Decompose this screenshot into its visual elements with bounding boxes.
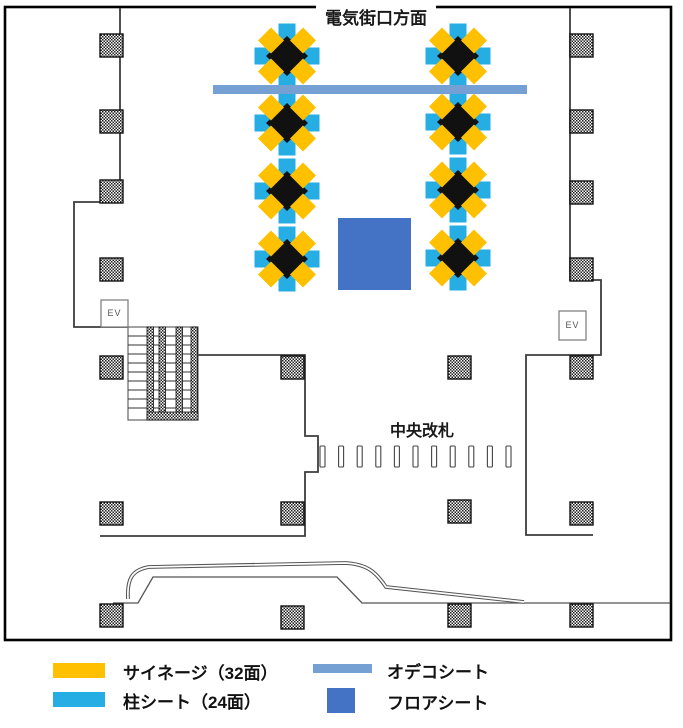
floor-sheet-area [338,218,411,290]
structural-pillar [281,356,304,379]
station-floor-plan-page: 電気街口方面 中央改札 EV EV サイネージ（32面） 柱シート（24面） オ… [0,0,683,728]
structural-pillar [100,604,123,627]
structural-pillar [570,356,593,379]
ramp-outline [113,563,670,603]
ticket-gate [469,446,474,467]
legend-swatch-floor-sheet [327,688,355,713]
decorated-pillar [255,227,320,292]
central-gate-label: 中央改札 [386,417,458,441]
structural-pillar [570,502,593,525]
legend-label-signage: サイネージ（32面） [123,659,278,684]
escalator-strip [176,327,183,420]
legend-swatch-signage [53,663,105,678]
decorated-pillar [255,24,320,89]
ticket-gate [394,446,399,467]
escalator-strip [159,327,166,420]
structural-pillars [100,34,593,629]
structural-pillar [100,356,123,379]
ticket-gate [413,446,418,467]
stairs [128,327,198,420]
structural-pillar [448,356,471,379]
elevator-boxes [101,300,586,340]
ticket-gate [487,446,492,467]
structural-pillar [570,258,593,281]
platform-edge-line [113,577,670,603]
structural-pillar [570,34,593,57]
structural-pillar [100,34,123,57]
structural-pillar [570,604,593,627]
escalator-end-cap [147,412,198,420]
elevator-label-right: EV [559,311,586,340]
structural-pillar [570,181,593,204]
structural-pillar [100,258,123,281]
plan-title: 電気街口方面 [316,4,436,29]
structural-pillar [281,606,304,629]
escalator-strip [147,327,154,420]
escalator-strip [191,327,198,420]
legend-label-pillar-sheet: 柱シート（24面） [123,688,261,713]
ticket-gate [376,446,381,467]
ticket-gate [357,446,362,467]
ticket-gate [450,446,455,467]
ticket-gate [339,446,344,467]
structural-pillar [448,500,471,523]
structural-pillar [100,502,123,525]
decorated-pillar [426,158,491,223]
legend: サイネージ（32面） 柱シート（24面） オデコシート フロアシート [0,648,683,728]
ticket-gates [320,446,511,467]
decorated-pillar [426,90,491,155]
decorated-pillar [255,159,320,224]
ramp-rail-inner [128,563,524,602]
elevator-label-left: EV [101,300,128,327]
legend-swatch-odeko-sheet [313,664,372,673]
structural-pillar [100,110,123,133]
ticket-gate [432,446,437,467]
structural-pillar [100,180,123,203]
legend-label-odeko-sheet: オデコシート [387,658,489,683]
ticket-gate [320,446,325,467]
structural-pillar [448,604,471,627]
structural-pillar [570,110,593,133]
structural-pillar [281,502,304,525]
legend-label-floor-sheet: フロアシート [387,689,488,714]
decorated-pillar [426,226,491,291]
decorated-pillar [426,24,491,89]
legend-swatch-pillar-sheet [53,692,105,707]
decorated-pillar [255,91,320,156]
ticket-gate [506,446,511,467]
odeko-sheet-bar [213,85,527,94]
